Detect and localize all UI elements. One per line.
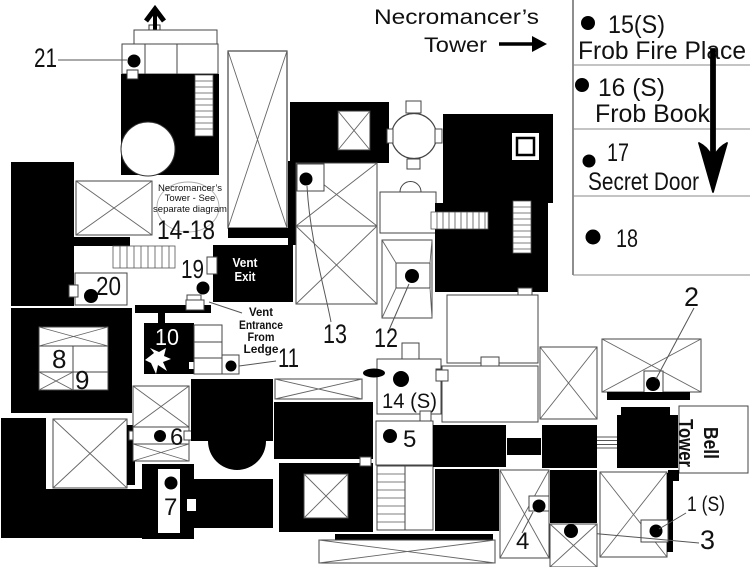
svg-text:6: 6 [170, 424, 183, 451]
svg-text:Tower - See: Tower - See [165, 193, 216, 204]
svg-text:13: 13 [323, 319, 347, 349]
svg-text:10: 10 [155, 324, 179, 350]
svg-text:8: 8 [52, 344, 66, 374]
svg-text:2: 2 [684, 282, 699, 312]
svg-text:Necromancer’s: Necromancer’s [374, 6, 539, 29]
svg-text:20: 20 [96, 271, 121, 301]
svg-text:Frob Fire Place: Frob Fire Place [578, 37, 746, 65]
svg-text:1 (S): 1 (S) [687, 493, 725, 516]
svg-text:9: 9 [75, 365, 89, 395]
svg-text:Bell: Bell [699, 427, 721, 459]
svg-text:14 (S): 14 (S) [382, 390, 437, 413]
svg-text:17: 17 [607, 139, 629, 167]
svg-text:Secret Door: Secret Door [588, 168, 699, 196]
svg-text:18: 18 [616, 225, 638, 253]
svg-text:Frob Book: Frob Book [595, 100, 710, 128]
svg-text:11: 11 [278, 343, 299, 373]
svg-text:Vent: Vent [233, 255, 259, 270]
svg-text:14-18: 14-18 [157, 215, 215, 245]
svg-text:7: 7 [164, 494, 177, 521]
svg-text:3: 3 [700, 525, 715, 555]
svg-text:21: 21 [34, 43, 57, 73]
svg-text:5: 5 [403, 426, 416, 453]
svg-text:separate diagram: separate diagram [153, 204, 227, 215]
svg-text:15(S): 15(S) [608, 11, 665, 39]
svg-text:19: 19 [181, 254, 204, 284]
svg-text:Vent: Vent [249, 305, 273, 319]
svg-text:Ledge: Ledge [244, 342, 279, 356]
svg-text:Exit: Exit [235, 269, 257, 284]
svg-text:16 (S): 16 (S) [598, 74, 665, 102]
svg-text:12: 12 [374, 323, 398, 353]
svg-text:Tower: Tower [674, 419, 696, 467]
svg-text:Tower: Tower [424, 34, 487, 57]
